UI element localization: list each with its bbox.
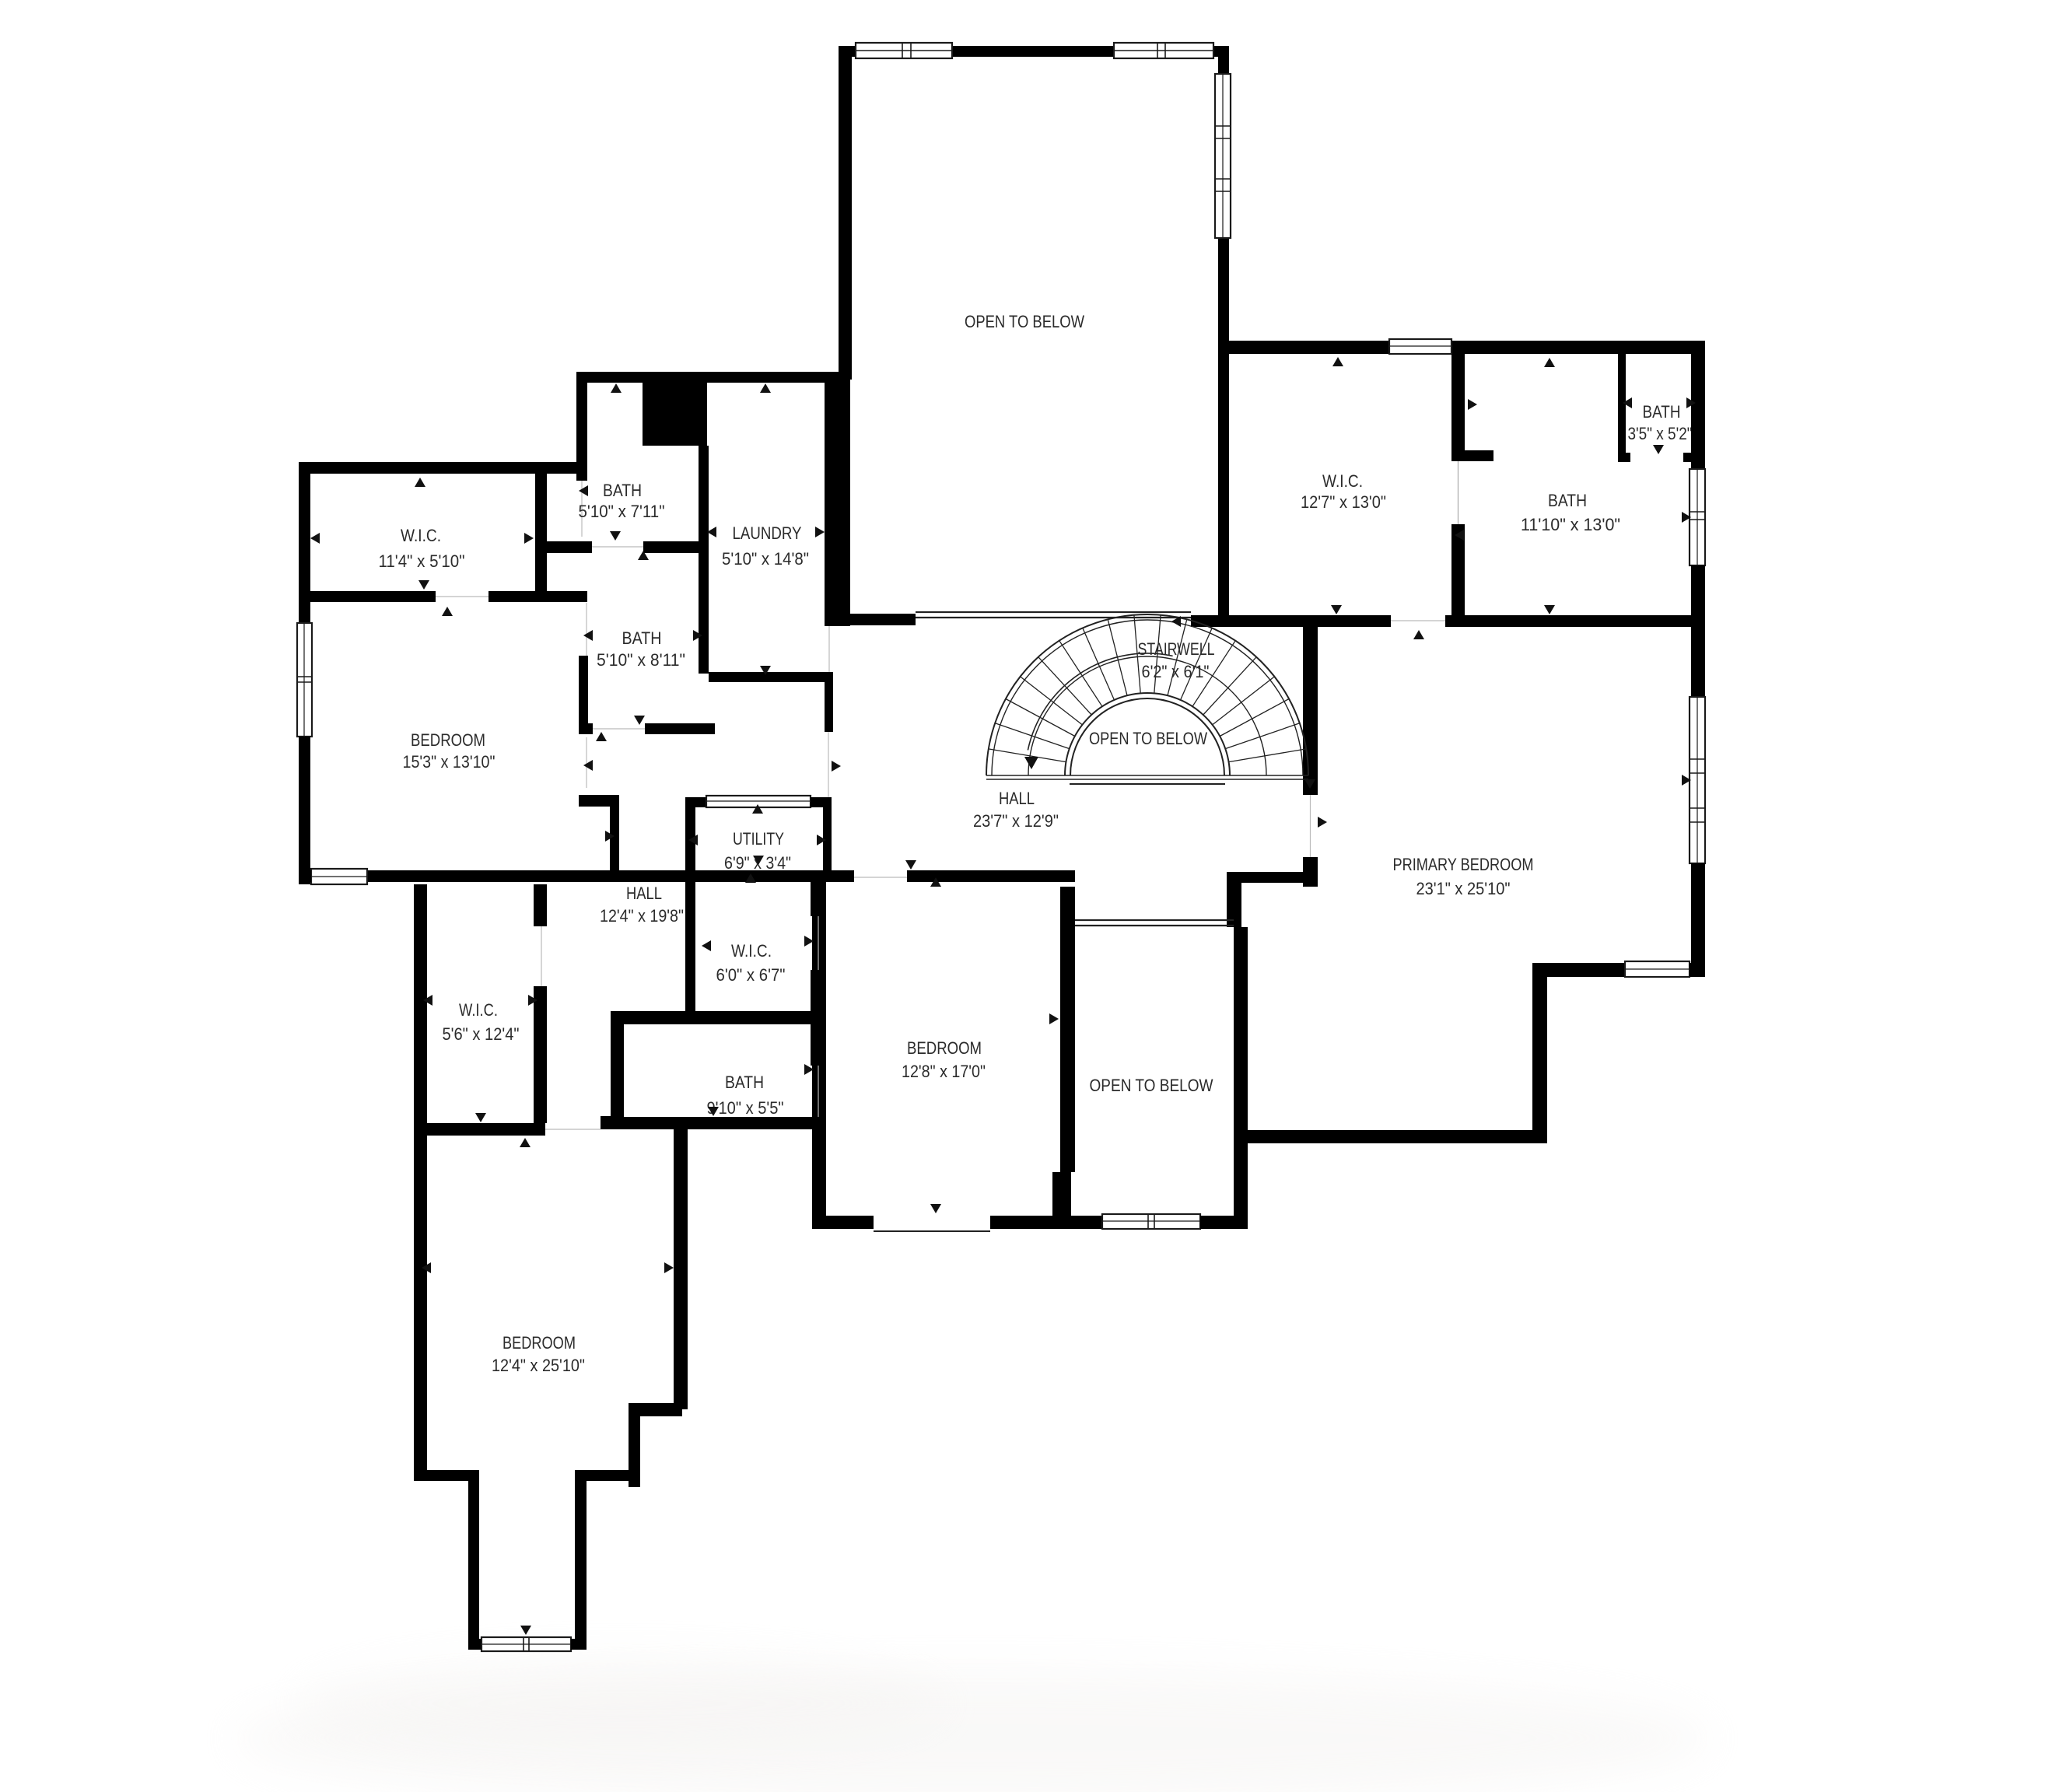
svg-text:11'4" x 5'10": 11'4" x 5'10" [379, 551, 465, 571]
svg-text:6'2" x 6'1": 6'2" x 6'1" [1142, 662, 1210, 681]
svg-text:BATH: BATH [603, 481, 642, 500]
svg-text:5'10" x 14'8": 5'10" x 14'8" [722, 549, 809, 569]
svg-text:12'7" x 13'0": 12'7" x 13'0" [1301, 492, 1386, 512]
svg-text:BATH: BATH [622, 628, 662, 648]
svg-text:UTILITY: UTILITY [733, 829, 784, 849]
svg-text:W.I.C.: W.I.C. [731, 941, 772, 961]
svg-text:STAIRWELL: STAIRWELL [1138, 639, 1215, 659]
svg-text:BATH: BATH [1548, 491, 1587, 510]
svg-text:12'4" x 19'8": 12'4" x 19'8" [600, 906, 684, 926]
svg-text:BEDROOM: BEDROOM [502, 1333, 576, 1353]
svg-text:HALL: HALL [626, 884, 662, 903]
svg-text:11'10" x 13'0": 11'10" x 13'0" [1521, 515, 1620, 534]
svg-text:5'6" x 12'4": 5'6" x 12'4" [443, 1024, 520, 1044]
svg-text:OPEN TO BELOW: OPEN TO BELOW [965, 312, 1084, 331]
svg-text:5'10" x 7'11": 5'10" x 7'11" [579, 502, 665, 521]
svg-text:PRIMARY BEDROOM: PRIMARY BEDROOM [1393, 855, 1534, 874]
svg-text:15'3" x 13'10": 15'3" x 13'10" [403, 752, 495, 772]
svg-text:W.I.C.: W.I.C. [1322, 471, 1363, 491]
svg-text:12'4" x 25'10": 12'4" x 25'10" [492, 1356, 585, 1375]
svg-text:W.I.C.: W.I.C. [459, 1000, 498, 1020]
svg-text:LAUNDRY: LAUNDRY [733, 523, 802, 543]
svg-text:OPEN TO BELOW: OPEN TO BELOW [1089, 729, 1207, 748]
svg-text:23'1" x 25'10": 23'1" x 25'10" [1416, 879, 1511, 898]
svg-text:BEDROOM: BEDROOM [907, 1038, 982, 1058]
svg-text:6'0" x 6'7": 6'0" x 6'7" [716, 965, 786, 985]
svg-text:3'5" x 5'2": 3'5" x 5'2" [1628, 424, 1693, 443]
svg-text:BATH: BATH [725, 1073, 764, 1092]
svg-text:12'8" x 17'0": 12'8" x 17'0" [902, 1062, 986, 1081]
svg-text:BATH: BATH [1643, 402, 1681, 422]
svg-text:9'10" x 5'5": 9'10" x 5'5" [707, 1098, 784, 1118]
svg-text:23'7" x 12'9": 23'7" x 12'9" [973, 811, 1059, 831]
svg-text:BEDROOM: BEDROOM [411, 730, 485, 750]
svg-text:W.I.C.: W.I.C. [401, 526, 441, 545]
svg-text:OPEN TO BELOW: OPEN TO BELOW [1090, 1076, 1213, 1095]
svg-text:HALL: HALL [999, 789, 1035, 808]
svg-text:5'10" x 8'11": 5'10" x 8'11" [597, 650, 685, 670]
